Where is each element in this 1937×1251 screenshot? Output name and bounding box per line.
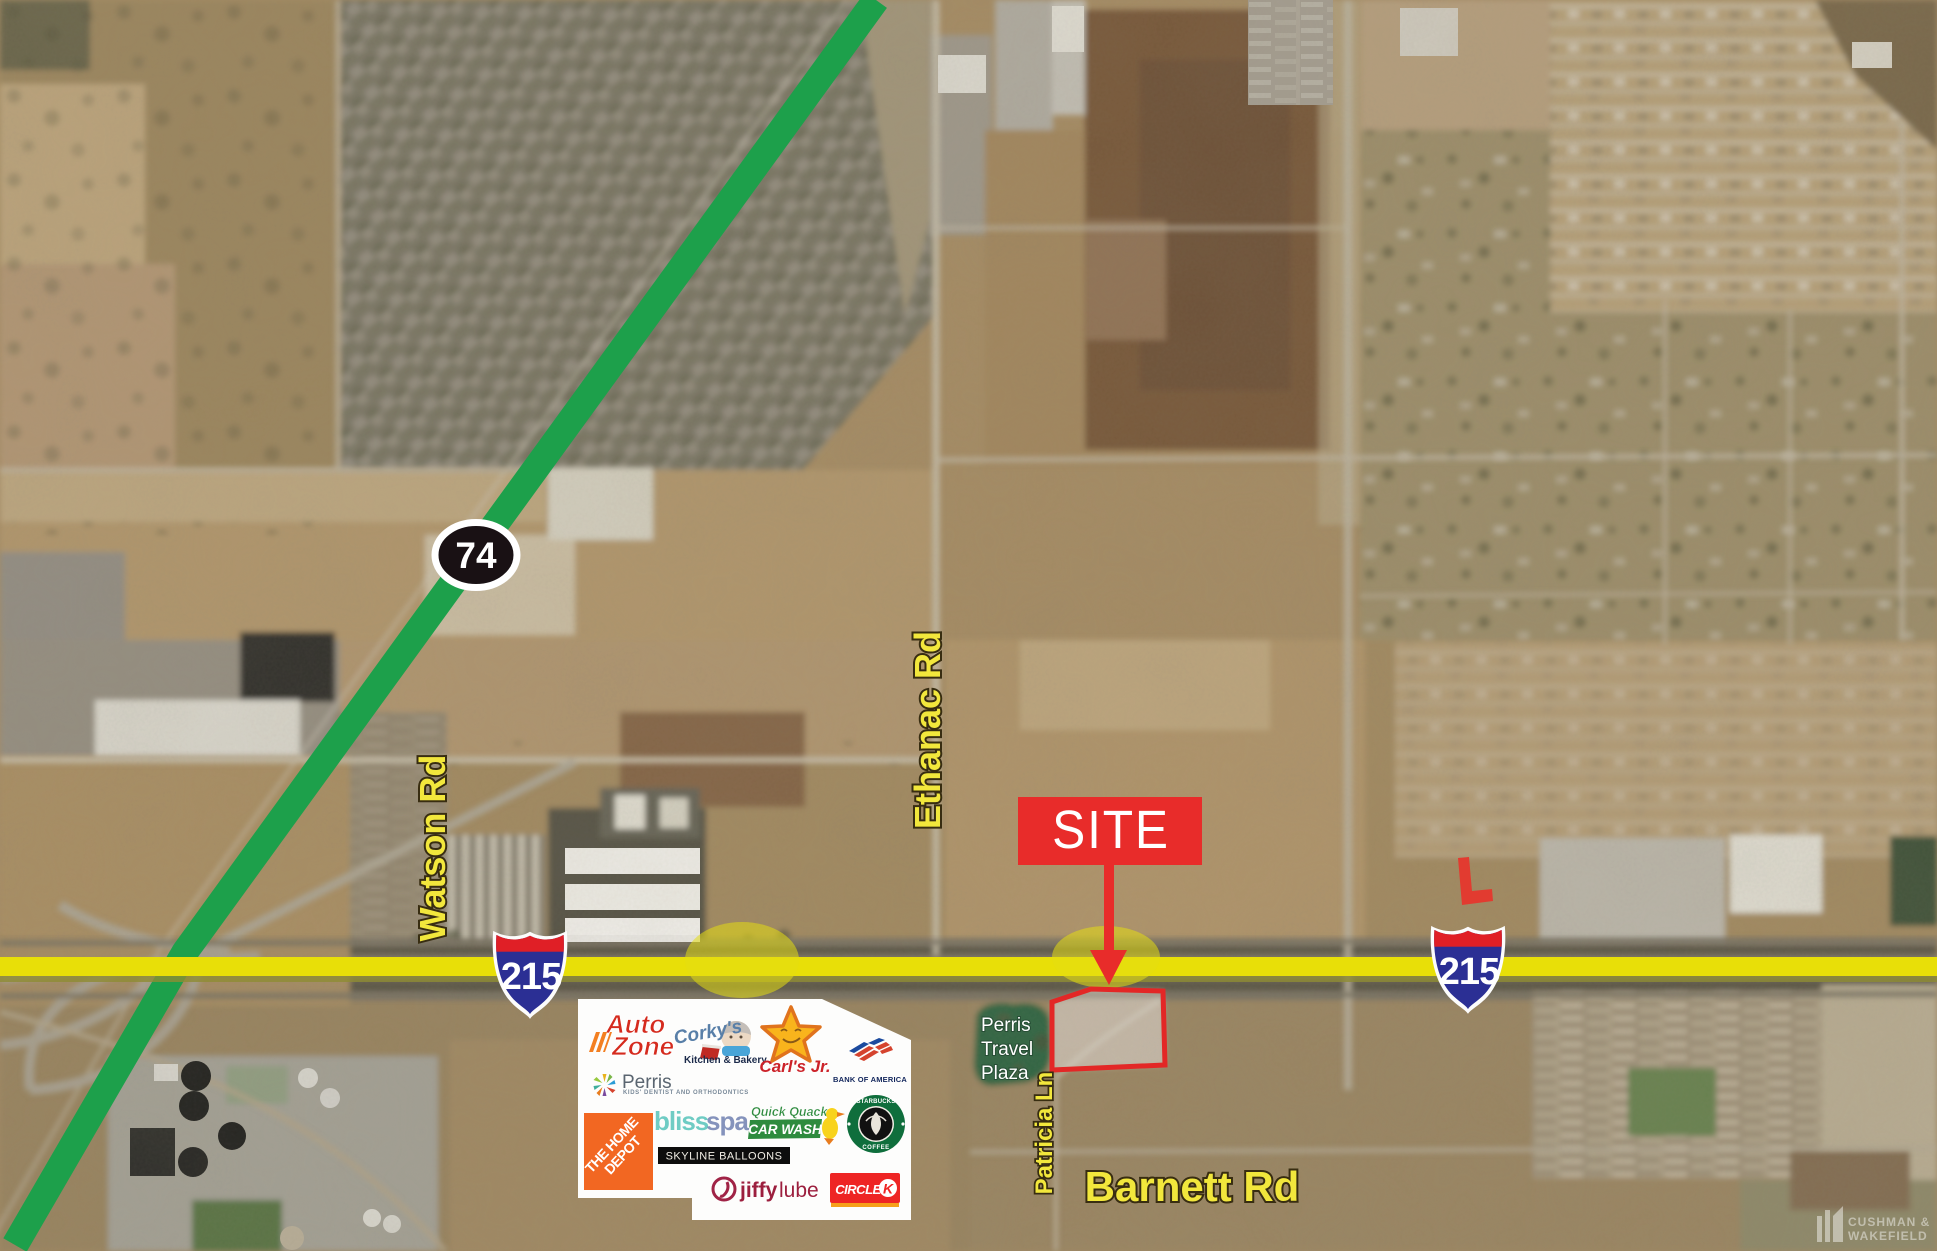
svg-text:Quick Quack: Quick Quack xyxy=(751,1105,828,1119)
svg-text:215: 215 xyxy=(1439,951,1500,993)
svg-text:COFFEE: COFFEE xyxy=(862,1145,889,1151)
svg-text:Patricia Ln: Patricia Ln xyxy=(1031,1072,1058,1195)
svg-text:74: 74 xyxy=(455,535,497,576)
svg-text:K: K xyxy=(883,1181,894,1197)
svg-text:spa: spa xyxy=(706,1106,749,1136)
svg-text:STARBUCKS: STARBUCKS xyxy=(856,1099,895,1105)
svg-text:Perris: Perris xyxy=(981,1015,1031,1036)
svg-text:Kitchen & Bakery: Kitchen & Bakery xyxy=(684,1055,767,1066)
svg-text:Ethanac Rd: Ethanac Rd xyxy=(907,631,948,829)
svg-text:CUSHMAN &: CUSHMAN & xyxy=(1848,1215,1930,1229)
svg-text:215: 215 xyxy=(501,956,562,998)
svg-text:SKYLINE BALLOONS: SKYLINE BALLOONS xyxy=(666,1151,783,1163)
svg-text:SITE: SITE xyxy=(1052,799,1170,859)
svg-text:Barnett Rd: Barnett Rd xyxy=(1085,1163,1300,1210)
svg-text:BANK OF AMERICA: BANK OF AMERICA xyxy=(833,1075,907,1084)
svg-text:CAR WASH: CAR WASH xyxy=(748,1122,822,1137)
svg-text:Carl's Jr.: Carl's Jr. xyxy=(759,1057,830,1076)
svg-text:CIRCLE: CIRCLE xyxy=(835,1182,881,1197)
svg-text:WAKEFIELD: WAKEFIELD xyxy=(1848,1229,1928,1243)
svg-text:KIDS' DENTIST AND ORTHODONTICS: KIDS' DENTIST AND ORTHODONTICS xyxy=(623,1090,749,1096)
svg-text:Zone: Zone xyxy=(611,1031,674,1061)
svg-text:Plaza: Plaza xyxy=(981,1063,1029,1084)
svg-text:Watson Rd: Watson Rd xyxy=(412,755,453,942)
svg-text:lube: lube xyxy=(779,1179,819,1202)
svg-text:bliss: bliss xyxy=(654,1106,709,1136)
svg-text:jiffy: jiffy xyxy=(739,1179,778,1202)
svg-text:Travel: Travel xyxy=(981,1039,1033,1060)
